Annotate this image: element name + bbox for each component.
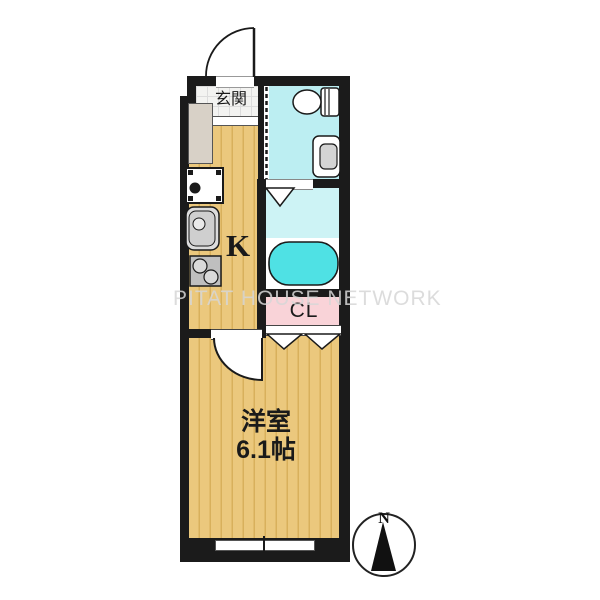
washing-machine-pan <box>186 168 223 203</box>
folding-door-bath-icon <box>266 188 294 206</box>
folding-door-closet-icon <box>267 334 340 349</box>
kitchen-label: K <box>226 228 250 264</box>
toilet <box>293 88 339 116</box>
bedroom-name: 洋室 <box>236 408 296 436</box>
bedroom-door <box>214 338 262 380</box>
entrance-label: 玄関 <box>215 85 247 109</box>
compass: N <box>353 510 415 576</box>
watermark: PITAT HOUSE NETWORK <box>173 287 442 311</box>
gas-stove <box>190 256 221 286</box>
kitchen-sink <box>186 207 219 250</box>
floor-plan-canvas: N 玄関 K CL 洋室 6.1帖 PITAT HOUSE NETWORK <box>0 0 600 600</box>
bathtub <box>269 242 338 285</box>
entrance-door <box>206 28 254 77</box>
compass-north-label: N <box>378 510 390 527</box>
bedroom-size: 6.1帖 <box>236 436 296 464</box>
bedroom-label: 洋室 6.1帖 <box>236 408 296 464</box>
washbasin <box>313 136 340 177</box>
